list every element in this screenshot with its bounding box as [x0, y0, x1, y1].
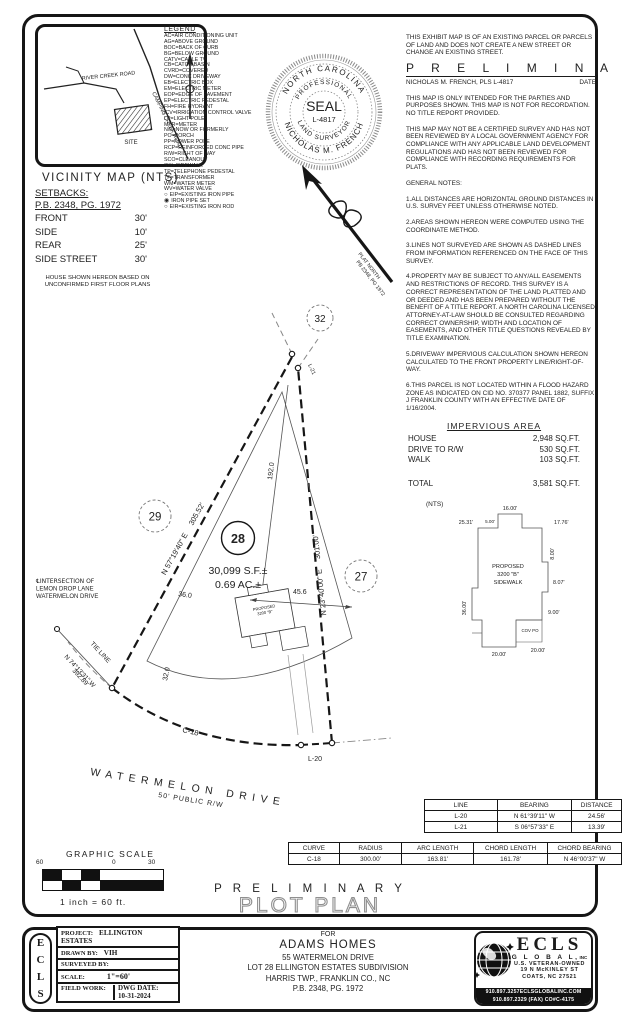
iron-pipe-icon: ○: [164, 205, 168, 211]
bearing-left: N 57°19'40" E305.52': [159, 501, 206, 577]
sheet-titles: P R E L I M I N A R Y PLOT PLAN: [180, 883, 440, 916]
impervious-row: HOUSE2,948 SQ.FT.: [408, 434, 580, 445]
curve-table-header: CHORD LENGTH: [474, 843, 548, 854]
intended-statement: THIS MAP IS ONLY INTENDED FOR THE PARTIE…: [406, 95, 596, 118]
ecls-street: 19 N McKINLEY ST: [510, 967, 589, 973]
line-table-row: L-20N 61°39'11" W24.56': [425, 811, 622, 822]
lot-28-label: 28: [231, 532, 245, 546]
line-table-header: DISTANCE: [572, 800, 622, 811]
dim-32: 32.0: [162, 667, 172, 682]
lot-subdivision: LOT 28 ELLINGTON ESTATES SUBDIVISION: [184, 963, 472, 972]
road1-label: RIVER CREEK ROAD: [82, 70, 136, 82]
line-l21-label: L-21: [306, 363, 316, 376]
setback-row: SIDE10': [35, 226, 147, 240]
svg-text:SIDEWALK: SIDEWALK: [494, 580, 523, 586]
svg-text:17.76': 17.76': [554, 520, 569, 526]
setbacks-reference: P.B. 2348, PG. 1972: [35, 200, 163, 212]
impervious-area-table: IMPERVIOUS AREA HOUSE2,948 SQ.FT.DRIVE T…: [408, 421, 580, 489]
svg-text:PROPOSED: PROPOSED: [492, 564, 524, 570]
house-detail-labels: PROPOSED 3200 "B" SIDEWALK: [492, 564, 524, 586]
boundary-l20: [301, 743, 332, 745]
setback-row: FRONT30': [35, 212, 147, 226]
star-icon: [474, 972, 480, 978]
nts-label: (NTS): [426, 501, 443, 508]
lot-29-label: 29: [149, 512, 162, 524]
ecls-fax-license: 910.897.2329 (FAX) CO#C-4175: [476, 996, 591, 1004]
graphic-scale-caption: 1 inch = 60 ft.: [60, 897, 126, 907]
svg-text:20.00': 20.00': [492, 652, 507, 658]
statements-column: THIS EXHIBIT MAP IS OF AN EXISTING PARCE…: [406, 34, 596, 413]
road-river-creek: [44, 83, 124, 103]
surveyor-signature-line: NICHOLAS M. FRENCH, PLS L-4817: [406, 79, 513, 87]
line-l20-label: L-20: [308, 756, 322, 763]
curve-table: CURVERADIUSARC LENGTHCHORD LENGTHCHORD B…: [288, 842, 622, 865]
curve-table-header: CHORD BEARING: [547, 843, 621, 854]
lot-area-sf: 30,099 S.F.±: [209, 565, 268, 577]
setbacks-note: HOUSE SHOWN HEREON BASED ON UNCONFIRMED …: [35, 275, 160, 289]
line-table: LINEBEARINGDISTANCE L-20N 61°39'11" W24.…: [424, 799, 622, 833]
graphic-scale-bar: [42, 869, 164, 891]
ecls-global-line: G L O B A L,INC: [510, 954, 589, 961]
impervious-title: IMPERVIOUS AREA: [408, 421, 580, 431]
general-note: 3.LINES NOT SURVEYED ARE SHOWN AS DASHED…: [406, 242, 596, 265]
legend-symbol-item: ○EIR=EXISTING IRON ROD: [164, 205, 304, 211]
impervious-row: DRIVE TO R/W530 SQ.FT.: [408, 445, 580, 456]
setbacks-title: SETBACKS:: [35, 188, 163, 200]
vicinity-map-title: VICINITY MAP (NTS): [42, 172, 179, 184]
setback-row: SIDE STREET30': [35, 253, 147, 267]
plot-plan-title: PLOT PLAN: [180, 895, 440, 916]
dim-36: 36.0: [178, 591, 193, 600]
lot-27-label: 27: [355, 572, 368, 584]
preliminary-statement: P R E L I M I N A R Y: [406, 65, 596, 77]
graphic-scale-title: GRAPHIC SCALE: [66, 849, 154, 859]
title-block-project-info: FOR ADAMS HOMES 55 WATERMELON DRIVE LOT …: [184, 931, 472, 993]
svg-text:9.00': 9.00': [548, 610, 560, 616]
seal-center-text: SEAL: [306, 98, 342, 114]
general-note: 4.PROPERTY MAY BE SUBJECT TO ANY/ALL EAS…: [406, 273, 596, 342]
curve-table-header: CURVE: [289, 843, 340, 854]
svg-text:LEMON DROP LANE: LEMON DROP LANE: [36, 587, 94, 593]
curve-table-row: C-18300.00'163.81'161.78'N 46°00'37" W: [289, 854, 622, 865]
house-detail-inset: (NTS) 16.00' 5.00' 25.31' 17.76' 8.00' 3…: [420, 492, 588, 672]
intersection-note: ℄INTERSECTION OF LEMON DROP LANE WATERME…: [36, 578, 98, 600]
plat-reference: P.B. 2348, PG. 1972: [184, 984, 472, 993]
lot-32-label: 32: [314, 314, 326, 325]
dim-45: 45.6: [293, 589, 307, 596]
boundary-curve-c18: [112, 688, 301, 745]
svg-text:℄INTERSECTION OF: ℄INTERSECTION OF: [36, 578, 95, 585]
svg-text:COV PO: COV PO: [521, 628, 539, 633]
ecls-global-block: ECLS G L O B A L,INC U.S. VETERAN-OWNED …: [474, 931, 593, 1006]
legend-symbol-items: ○EIP=EXISTING IRON PIPE◉IRON PIPE SET○EI…: [164, 193, 304, 211]
date-label: DATE: [579, 79, 596, 87]
for-label: FOR: [184, 931, 472, 938]
svg-text:WATERMELON DRIVE: WATERMELON DRIVE: [36, 594, 98, 600]
svg-text:5.00': 5.00': [485, 519, 495, 524]
township-county: HARRIS TWP., FRANKLIN CO., NC: [184, 974, 472, 983]
setback-row: REAR25': [35, 239, 147, 253]
impervious-total-row: TOTAL 3,581 SQ.FT.: [408, 479, 580, 490]
site-label: SITE: [124, 140, 137, 146]
tie-line-label: TIE LINE: [89, 641, 113, 666]
svg-text:16.00': 16.00': [503, 506, 518, 512]
curve-table-header: ARC LENGTH: [402, 843, 474, 854]
setbacks-block: SETBACKS: P.B. 2348, PG. 1972 FRONT30'SI…: [35, 188, 163, 289]
plot-drawing: PROPOSED 3200 "B" 32 29 27 28 30,099 S.F…: [20, 295, 420, 820]
general-notes-title: GENERAL NOTES:: [406, 180, 596, 188]
site-parcel: [114, 105, 151, 134]
svg-text:25.31': 25.31': [459, 520, 474, 526]
svg-text:20.00': 20.00': [531, 648, 546, 654]
svg-text:8.07': 8.07': [553, 580, 565, 586]
interior-dimension: 192.0: [267, 462, 276, 480]
curve-table-header: RADIUS: [339, 843, 401, 854]
general-note: 2.AREAS SHOWN HEREON WERE COMPUTED USING…: [406, 219, 596, 234]
svg-text:36.00': 36.00': [462, 601, 468, 616]
ecls-city: COATS, NC 27521: [510, 974, 589, 980]
north-arrow: PLAT NORTH PB 2348, PG 1972: [292, 162, 417, 297]
not-certified-statement: THIS MAP MAY NOT BE A CERTIFIED SURVEY A…: [406, 126, 596, 172]
line-table-row: L-21S 06°57'33" E13.39': [425, 822, 622, 833]
globe-icon: [474, 939, 515, 981]
ecls-phone-web: 910.897.3257ECLSGLOBALINC.COM: [476, 988, 591, 996]
field-project: PROJECT:ELLINGTON ESTATES: [56, 926, 180, 948]
title-block: E C L S PROJECT:ELLINGTON ESTATES DRAWN …: [22, 927, 598, 1012]
lot-area-ac: 0.69 AC.±: [215, 579, 261, 591]
iron-pin-icons: [55, 351, 335, 747]
seal-license-number: L-4817: [312, 115, 335, 124]
general-note: 5.DRIVEWAY IMPERVIOUS CALCULATION SHOWN …: [406, 351, 596, 374]
ecls-name: ECLS: [510, 935, 589, 954]
general-note: 1.ALL DISTANCES ARE HORIZONTAL GROUND DI…: [406, 196, 596, 211]
impervious-row: WALK103 SQ.FT.: [408, 455, 580, 466]
line-table-header: LINE: [425, 800, 498, 811]
svg-text:3200 "B": 3200 "B": [497, 572, 519, 578]
client-name: ADAMS HOMES: [184, 939, 472, 951]
general-note: 6.THIS PARCEL IS NOT LOCATED WITHIN A FL…: [406, 382, 596, 413]
field-fieldwork-dwgdate: FIELD WORK: DWG DATE:10-31-2024: [56, 982, 180, 1003]
curve-c18-label: C-18: [182, 725, 200, 737]
svg-text:8.00': 8.00': [550, 548, 556, 560]
site-address: 55 WATERMELON DRIVE: [184, 953, 472, 962]
title-block-fields: PROJECT:ELLINGTON ESTATES DRAWN BY:VIH S…: [56, 928, 180, 1003]
line-table-header: BEARING: [497, 800, 572, 811]
general-notes: 1.ALL DISTANCES ARE HORIZONTAL GROUND DI…: [406, 196, 596, 413]
exhibit-statement: THIS EXHIBIT MAP IS OF AN EXISTING PARCE…: [406, 34, 596, 57]
ecls-vertical-logo: E C L S: [29, 933, 52, 1004]
